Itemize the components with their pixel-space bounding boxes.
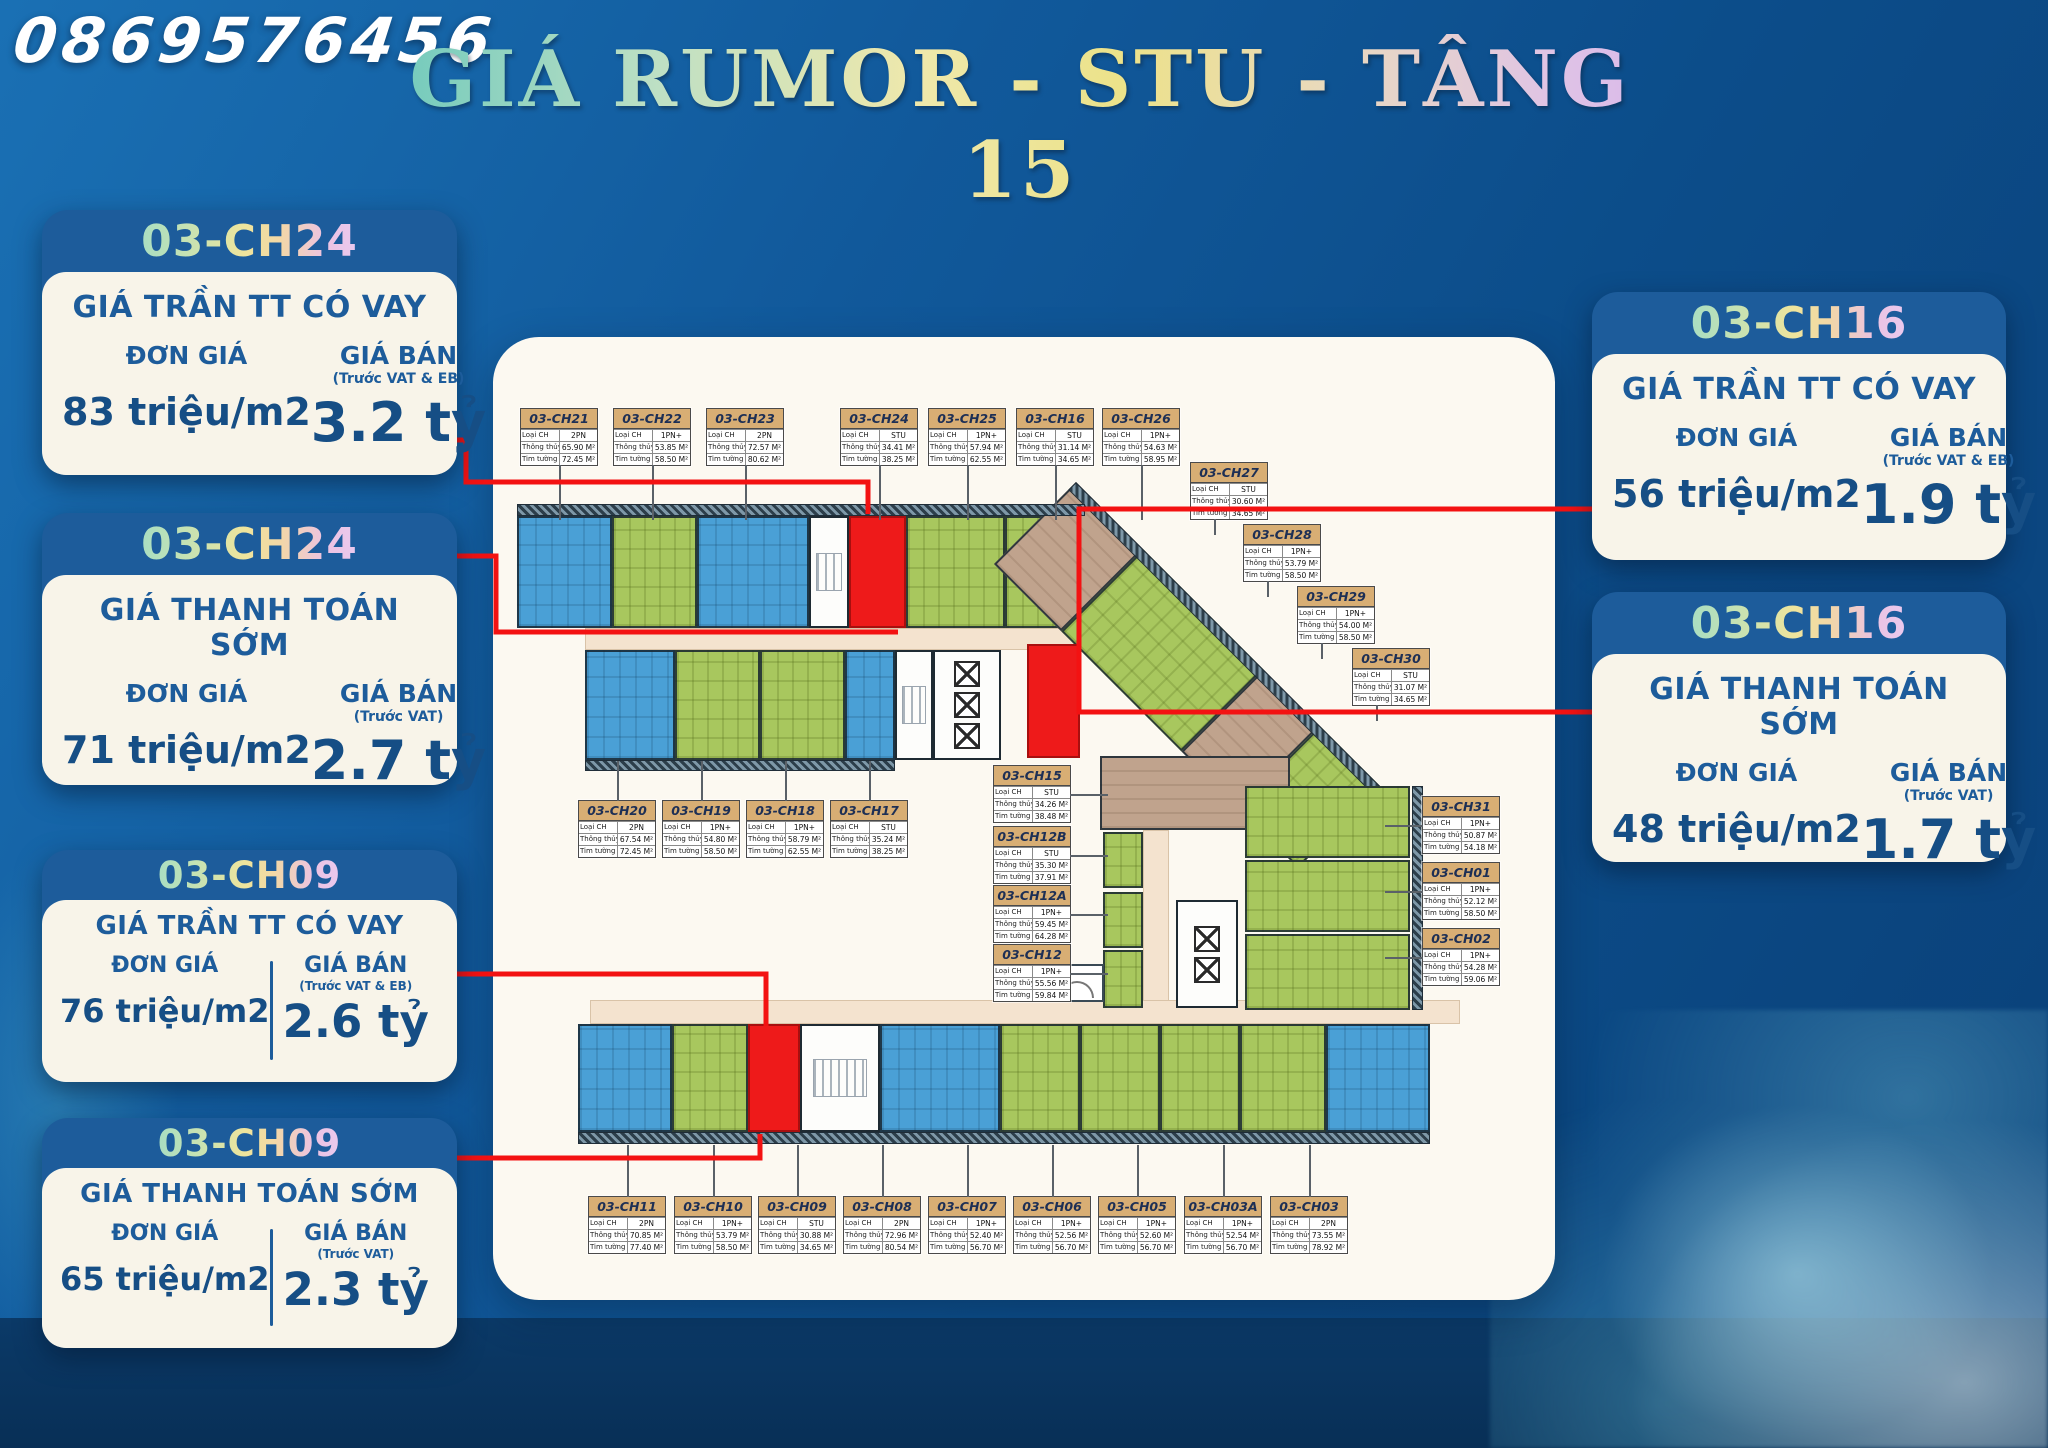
unit-net-area: 72.57 M² [746, 442, 783, 453]
unit-code: 03-CH12B [994, 827, 1070, 847]
unit-block [672, 1024, 748, 1132]
unit-type: 1PN+ [1283, 546, 1320, 557]
unit-price-label: ĐƠN GIÁ [126, 341, 248, 370]
field-label: Thông thủy [1423, 896, 1462, 907]
unit-code: 03-CH11 [589, 1197, 665, 1217]
unit-type-row: Loại CH 1PN+ [614, 429, 690, 441]
unit-gross-area-row: Tim tường 34.65 M² [1191, 507, 1267, 519]
unit-block [517, 516, 612, 628]
unit-label: 03-CH25 Loại CH 1PN+ Thông thủy 57.94 M²… [928, 408, 1006, 466]
field-label: Loại CH [1423, 884, 1462, 895]
unit-type-row: Loại CH 1PN+ [1185, 1217, 1261, 1229]
unit-block [612, 516, 697, 628]
field-label: Thông thủy [994, 919, 1033, 930]
unit-code: 03-CH29 [1298, 587, 1374, 607]
unit-price-label: ĐƠN GIÁ [1676, 758, 1798, 787]
unit-gross-area-row: Tim tường 58.95 M² [1103, 453, 1179, 465]
unit-gross-area-row: Tim tường 62.55 M² [747, 845, 823, 857]
field-label: Thông thủy [1353, 682, 1392, 693]
field-label: Tim tường [1191, 508, 1230, 519]
unit-label: 03-CH17 Loại CH STU Thông thủy 35.24 M² … [830, 800, 908, 858]
unit-type: 2PN [746, 430, 783, 441]
unit-gross-area: 56.70 M² [968, 1242, 1005, 1253]
unit-net-area-row: Thông thủy 34.41 M² [841, 441, 917, 453]
field-label: Loại CH [929, 430, 968, 441]
field-label: Thông thủy [1423, 830, 1462, 841]
unit-code: 03-CH24 [841, 409, 917, 429]
unit-gross-area-row: Tim tường 58.50 M² [663, 845, 739, 857]
unit-type-row: Loại CH 1PN+ [663, 821, 739, 833]
unit-type-row: Loại CH 1PN+ [1099, 1217, 1175, 1229]
field-label: Tim tường [747, 846, 786, 857]
field-label: Thông thủy [841, 442, 880, 453]
field-label: Tim tường [844, 1242, 883, 1253]
unit-block [880, 1024, 1000, 1132]
unit-net-area: 53.85 M² [653, 442, 690, 453]
price-card-header: 03-CH09 [42, 1118, 457, 1168]
unit-label: 03-CH08 Loại CH 2PN Thông thủy 72.96 M² … [843, 1196, 921, 1254]
price-card-header: 03-CH16 [1592, 292, 2006, 354]
unit-type-row: Loại CH STU [841, 429, 917, 441]
unit-net-area: 58.79 M² [786, 834, 823, 845]
field-label: Tim tường [841, 454, 880, 465]
unit-code: 03-CH01 [1423, 863, 1499, 883]
unit-type-row: Loại CH 1PN+ [1423, 883, 1499, 895]
unit-label: 03-CH12 Loại CH 1PN+ Thông thủy 55.56 M²… [993, 944, 1071, 1002]
unit-code: 03-CH24 [141, 519, 358, 570]
field-label: Loại CH [844, 1218, 883, 1229]
unit-type: STU [1392, 670, 1429, 681]
unit-code: 03-CH08 [844, 1197, 920, 1217]
unit-type-row: Loại CH 1PN+ [1014, 1217, 1090, 1229]
unit-code: 03-CH16 [1691, 298, 1908, 349]
elevator-core [933, 650, 1001, 760]
field-label: Loại CH [1017, 430, 1056, 441]
unit-gross-area: 77.40 M² [628, 1242, 665, 1253]
field-label: Tim tường [579, 846, 618, 857]
unit-price-value: 65 triệu/m2 [60, 1260, 270, 1298]
sale-price-label: GIÁ BÁN [304, 1221, 407, 1246]
unit-label: 03-CH11 Loại CH 2PN Thông thủy 70.85 M² … [588, 1196, 666, 1254]
field-label: Thông thủy [589, 1230, 628, 1241]
unit-type-row: Loại CH 1PN+ [1423, 949, 1499, 961]
unit-gross-area-row: Tim tường 56.70 M² [929, 1241, 1005, 1253]
unit-label: 03-CH30 Loại CH STU Thông thủy 31.07 M² … [1352, 648, 1430, 706]
unit-gross-area-row: Tim tường 59.06 M² [1423, 973, 1499, 985]
unit-price-label: ĐƠN GIÁ [1676, 423, 1798, 452]
stair-core [800, 1024, 880, 1132]
unit-code: 03-CH24 [141, 216, 358, 267]
unit-gross-area: 59.84 M² [1033, 990, 1070, 1001]
sale-price-value: 2.3 tỷ [283, 1263, 429, 1316]
unit-price-value: 48 triệu/m2 [1612, 807, 1861, 851]
unit-code: 03-CH10 [675, 1197, 751, 1217]
unit-net-area: 54.28 M² [1462, 962, 1499, 973]
sale-price-value: 1.7 tỷ [1861, 808, 2036, 871]
unit-gross-area-row: Tim tường 80.62 M² [707, 453, 783, 465]
unit-gross-area-row: Tim tường 62.55 M² [929, 453, 1005, 465]
unit-type-row: Loại CH 2PN [844, 1217, 920, 1229]
field-label: Loại CH [994, 966, 1033, 977]
unit-gross-area: 64.28 M² [1033, 931, 1070, 942]
unit-label: 03-CH23 Loại CH 2PN Thông thủy 72.57 M² … [706, 408, 784, 466]
unit-gross-area-row: Tim tường 37.91 M² [994, 871, 1070, 883]
sale-price-note: (Trước VAT) [317, 1247, 394, 1261]
unit-price-value: 56 triệu/m2 [1612, 472, 1861, 516]
unit-net-area-row: Thông thủy 53.79 M² [1244, 557, 1320, 569]
unit-label: 03-CH27 Loại CH STU Thông thủy 30.60 M² … [1190, 462, 1268, 520]
field-label: Thông thủy [844, 1230, 883, 1241]
unit-net-area-row: Thông thủy 35.30 M² [994, 859, 1070, 871]
field-label: Loại CH [1103, 430, 1142, 441]
unit-type-row: Loại CH 1PN+ [1103, 429, 1179, 441]
unit-net-area-row: Thông thủy 57.94 M² [929, 441, 1005, 453]
field-label: Loại CH [707, 430, 746, 441]
unit-gross-area: 58.50 M² [653, 454, 690, 465]
price-card-header: 03-CH24 [42, 210, 457, 272]
sale-price-note: (Trước VAT & EB) [333, 371, 465, 387]
unit-net-area-row: Thông thủy 30.60 M² [1191, 495, 1267, 507]
unit-gross-area: 56.70 M² [1224, 1242, 1261, 1253]
unit-label: 03-CH29 Loại CH 1PN+ Thông thủy 54.00 M²… [1297, 586, 1375, 644]
stair-core [809, 516, 849, 628]
unit-type: STU [1230, 484, 1267, 495]
unit-block [1103, 950, 1143, 1008]
sale-price-label: GIÁ BÁN [340, 679, 457, 708]
field-label: Thông thủy [994, 978, 1033, 989]
unit-type: 2PN [560, 430, 597, 441]
unit-type-row: Loại CH 2PN [521, 429, 597, 441]
unit-type: 2PN [628, 1218, 665, 1229]
unit-net-area-row: Thông thủy 70.85 M² [589, 1229, 665, 1241]
field-label: Thông thủy [1298, 620, 1337, 631]
field-label: Tim tường [929, 454, 968, 465]
unit-code: 03-CH03A [1185, 1197, 1261, 1217]
unit-block [1080, 1024, 1160, 1132]
unit-type: 1PN+ [1053, 1218, 1090, 1229]
unit-gross-area: 34.65 M² [798, 1242, 835, 1253]
stair-core [895, 650, 933, 760]
price-card-body: GIÁ TRẦN TT CÓ VAY ĐƠN GIÁ 56 triệu/m2 G… [1592, 354, 2006, 560]
field-label: Thông thủy [1017, 442, 1056, 453]
unit-code: 03-CH12A [994, 886, 1070, 906]
unit-code: 03-CH22 [614, 409, 690, 429]
unit-gross-area: 38.25 M² [880, 454, 917, 465]
unit-block [697, 516, 809, 628]
field-label: Loại CH [521, 430, 560, 441]
unit-code: 03-CH28 [1244, 525, 1320, 545]
unit-label: 03-CH07 Loại CH 1PN+ Thông thủy 52.40 M²… [928, 1196, 1006, 1254]
unit-type-row: Loại CH 1PN+ [1423, 817, 1499, 829]
field-label: Loại CH [1423, 950, 1462, 961]
field-label: Tim tường [831, 846, 870, 857]
unit-price-value: 76 triệu/m2 [60, 992, 270, 1030]
unit-gross-area: 58.50 M² [1462, 908, 1499, 919]
unit-net-area-row: Thông thủy 72.57 M² [707, 441, 783, 453]
price-card-body: GIÁ TRẦN TT CÓ VAY ĐƠN GIÁ 76 triệu/m2 G… [42, 900, 457, 1082]
unit-gross-area: 80.62 M² [746, 454, 783, 465]
unit-gross-area: 58.50 M² [1283, 570, 1320, 581]
unit-net-area: 57.94 M² [968, 442, 1005, 453]
unit-label: 03-CH06 Loại CH 1PN+ Thông thủy 52.56 M²… [1013, 1196, 1091, 1254]
unit-gross-area: 80.54 M² [883, 1242, 920, 1253]
sale-price-value: 2.6 tỷ [283, 995, 429, 1048]
field-label: Tim tường [614, 454, 653, 465]
unit-gross-area: 58.50 M² [714, 1242, 751, 1253]
field-label: Thông thủy [675, 1230, 714, 1241]
sale-price-value: 2.7 tỷ [311, 729, 486, 792]
unit-code: 03-CH09 [759, 1197, 835, 1217]
unit-price-value: 71 triệu/m2 [62, 728, 311, 772]
price-type-title: GIÁ THANH TOÁN SỚM [58, 593, 441, 663]
unit-block [675, 650, 760, 760]
unit-gross-area-row: Tim tường 34.65 M² [1353, 693, 1429, 705]
unit-gross-area: 78.92 M² [1310, 1242, 1347, 1253]
unit-gross-area-row: Tim tường 56.70 M² [1185, 1241, 1261, 1253]
unit-type: 1PN+ [714, 1218, 751, 1229]
price-type-title: GIÁ TRẦN TT CÓ VAY [56, 911, 443, 941]
unit-code: 03-CH05 [1099, 1197, 1175, 1217]
unit-block [1245, 934, 1410, 1010]
field-label: Tim tường [1099, 1242, 1138, 1253]
unit-code: 03-CH21 [521, 409, 597, 429]
unit-net-area-row: Thông thủy 65.90 M² [521, 441, 597, 453]
unit-code: 03-CH25 [929, 409, 1005, 429]
field-label: Tim tường [1271, 1242, 1310, 1253]
unit-net-area: 31.14 M² [1056, 442, 1093, 453]
field-label: Thông thủy [1244, 558, 1283, 569]
price-card-ch16-som: 03-CH16 GIÁ THANH TOÁN SỚM ĐƠN GIÁ 48 tr… [1592, 592, 2006, 862]
unit-block [585, 650, 675, 760]
unit-block [1240, 1024, 1326, 1132]
unit-net-area-row: Thông thủy 31.14 M² [1017, 441, 1093, 453]
elevator-core [1176, 900, 1238, 1008]
unit-type-row: Loại CH 2PN [579, 821, 655, 833]
field-label: Loại CH [675, 1218, 714, 1229]
unit-net-area-row: Thông thủy 53.85 M² [614, 441, 690, 453]
unit-type-row: Loại CH STU [994, 847, 1070, 859]
unit-code: 03-CH15 [994, 766, 1070, 786]
unit-price-label: ĐƠN GIÁ [111, 1221, 218, 1246]
field-label: Tim tường [1423, 842, 1462, 853]
unit-type: 1PN+ [968, 430, 1005, 441]
unit-gross-area-row: Tim tường 34.65 M² [1017, 453, 1093, 465]
sale-price-label: GIÁ BÁN [1890, 423, 2007, 452]
price-card-ch16-tran: 03-CH16 GIÁ TRẦN TT CÓ VAY ĐƠN GIÁ 56 tr… [1592, 292, 2006, 560]
unit-type: STU [870, 822, 907, 833]
field-label: Tim tường [1244, 570, 1283, 581]
unit-type: STU [1056, 430, 1093, 441]
unit-net-area-row: Thông thủy 52.12 M² [1423, 895, 1499, 907]
unit-net-area: 67.54 M² [618, 834, 655, 845]
unit-net-area-row: Thông thủy 52.54 M² [1185, 1229, 1261, 1241]
unit-type: 1PN+ [1142, 430, 1179, 441]
unit-gross-area: 37.91 M² [1033, 872, 1070, 883]
unit-label: 03-CH10 Loại CH 1PN+ Thông thủy 53.79 M²… [674, 1196, 752, 1254]
unit-type-row: Loại CH STU [1191, 483, 1267, 495]
unit-code: 03-CH26 [1103, 409, 1179, 429]
unit-gross-area-row: Tim tường 77.40 M² [589, 1241, 665, 1253]
unit-gross-area-row: Tim tường 38.25 M² [831, 845, 907, 857]
field-label: Thông thủy [663, 834, 702, 845]
field-label: Tim tường [1423, 974, 1462, 985]
price-card-ch09-tran: 03-CH09 GIÁ TRẦN TT CÓ VAY ĐƠN GIÁ 76 tr… [42, 850, 457, 1082]
unit-net-area: 34.26 M² [1033, 799, 1070, 810]
unit-label: 03-CH12A Loại CH 1PN+ Thông thủy 59.45 M… [993, 885, 1071, 943]
unit-gross-area-row: Tim tường 38.25 M² [841, 453, 917, 465]
unit-type: 2PN [883, 1218, 920, 1229]
unit-gross-area: 56.70 M² [1053, 1242, 1090, 1253]
unit-gross-area: 62.55 M² [968, 454, 1005, 465]
field-label: Tim tường [994, 872, 1033, 883]
field-label: Loại CH [1423, 818, 1462, 829]
field-label: Tim tường [1103, 454, 1142, 465]
unit-code: 03-CH27 [1191, 463, 1267, 483]
field-label: Tim tường [994, 931, 1033, 942]
highlighted-unit-ch09 [748, 1024, 800, 1132]
unit-net-area-row: Thông thủy 73.55 M² [1271, 1229, 1347, 1241]
unit-gross-area: 56.70 M² [1138, 1242, 1175, 1253]
unit-code: 03-CH20 [579, 801, 655, 821]
field-label: Loại CH [1185, 1218, 1224, 1229]
field-label: Thông thủy [579, 834, 618, 845]
unit-net-area-row: Thông thủy 30.88 M² [759, 1229, 835, 1241]
unit-net-area: 50.87 M² [1462, 830, 1499, 841]
field-label: Tim tường [994, 811, 1033, 822]
field-label: Thông thủy [994, 799, 1033, 810]
elevator-icon [1194, 926, 1220, 952]
unit-net-area-row: Thông thủy 50.87 M² [1423, 829, 1499, 841]
unit-gross-area-row: Tim tường 58.50 M² [1244, 569, 1320, 581]
price-card-body: GIÁ TRẦN TT CÓ VAY ĐƠN GIÁ 83 triệu/m2 G… [42, 272, 457, 475]
field-label: Tim tường [1423, 908, 1462, 919]
unit-type: 1PN+ [968, 1218, 1005, 1229]
unit-label: 03-CH02 Loại CH 1PN+ Thông thủy 54.28 M²… [1422, 928, 1500, 986]
unit-block [1245, 786, 1410, 858]
unit-block [1103, 832, 1143, 888]
unit-code: 03-CH06 [1014, 1197, 1090, 1217]
sale-price-value: 1.9 tỷ [1861, 473, 2036, 536]
unit-type-row: Loại CH 1PN+ [929, 1217, 1005, 1229]
field-label: Tim tường [1298, 632, 1337, 643]
unit-net-area-row: Thông thủy 34.26 M² [994, 798, 1070, 810]
unit-block [578, 1024, 672, 1132]
unit-net-area-row: Thông thủy 59.45 M² [994, 918, 1070, 930]
unit-net-area: 35.24 M² [870, 834, 907, 845]
corridor [1143, 830, 1169, 1010]
unit-net-area: 52.54 M² [1224, 1230, 1261, 1241]
unit-gross-area-row: Tim tường 58.50 M² [1423, 907, 1499, 919]
unit-type-row: Loại CH STU [1017, 429, 1093, 441]
unit-label: 03-CH31 Loại CH 1PN+ Thông thủy 50.87 M²… [1422, 796, 1500, 854]
unit-net-area: 54.80 M² [702, 834, 739, 845]
unit-block [1160, 1024, 1240, 1132]
unit-gross-area-row: Tim tường 38.48 M² [994, 810, 1070, 822]
unit-gross-area-row: Tim tường 58.50 M² [1298, 631, 1374, 643]
unit-net-area-row: Thông thủy 67.54 M² [579, 833, 655, 845]
unit-gross-area: 72.45 M² [560, 454, 597, 465]
field-label: Thông thủy [929, 1230, 968, 1241]
unit-gross-area: 58.50 M² [1337, 632, 1374, 643]
unit-label: 03-CH24 Loại CH STU Thông thủy 34.41 M² … [840, 408, 918, 466]
field-label: Thông thủy [759, 1230, 798, 1241]
unit-label: 03-CH22 Loại CH 1PN+ Thông thủy 53.85 M²… [613, 408, 691, 466]
field-label: Loại CH [1191, 484, 1230, 495]
sale-price-label: GIÁ BÁN [340, 341, 457, 370]
unit-label: 03-CH26 Loại CH 1PN+ Thông thủy 54.63 M²… [1102, 408, 1180, 466]
elevator-icon [1194, 957, 1220, 983]
unit-block [1245, 860, 1410, 932]
unit-net-area: 59.45 M² [1033, 919, 1070, 930]
unit-gross-area: 72.45 M² [618, 846, 655, 857]
elevator-icon [954, 723, 980, 749]
unit-code: 03-CH09 [158, 1122, 341, 1165]
unit-type: STU [880, 430, 917, 441]
unit-label: 03-CH12B Loại CH STU Thông thủy 35.30 M²… [993, 826, 1071, 884]
field-label: Tim tường [589, 1242, 628, 1253]
field-label: Loại CH [1271, 1218, 1310, 1229]
unit-type: STU [1033, 848, 1070, 859]
unit-gross-area: 58.95 M² [1142, 454, 1179, 465]
field-label: Loại CH [1298, 608, 1337, 619]
unit-label: 03-CH09 Loại CH STU Thông thủy 30.88 M² … [758, 1196, 836, 1254]
price-type-title: GIÁ TRẦN TT CÓ VAY [58, 290, 441, 325]
unit-net-area-row: Thông thủy 52.40 M² [929, 1229, 1005, 1241]
field-label: Thông thủy [1191, 496, 1230, 507]
field-label: Thông thủy [994, 860, 1033, 871]
field-label: Thông thủy [1103, 442, 1142, 453]
field-label: Loại CH [994, 907, 1033, 918]
field-label: Loại CH [994, 848, 1033, 859]
unit-type-row: Loại CH STU [831, 821, 907, 833]
unit-net-area-row: Thông thủy 31.07 M² [1353, 681, 1429, 693]
corridor [585, 628, 1090, 650]
unit-gross-area-row: Tim tường 34.65 M² [759, 1241, 835, 1253]
elevator-icon [954, 692, 980, 718]
field-label: Loại CH [589, 1218, 628, 1229]
unit-price-label: ĐƠN GIÁ [111, 953, 218, 978]
unit-label: 03-CH05 Loại CH 1PN+ Thông thủy 52.60 M²… [1098, 1196, 1176, 1254]
unit-type: 2PN [1310, 1218, 1347, 1229]
unit-type: 1PN+ [1462, 950, 1499, 961]
unit-net-area: 35.30 M² [1033, 860, 1070, 871]
unit-gross-area-row: Tim tường 72.45 M² [579, 845, 655, 857]
unit-type-row: Loại CH 1PN+ [675, 1217, 751, 1229]
unit-label: 03-CH15 Loại CH STU Thông thủy 34.26 M² … [993, 765, 1071, 823]
unit-gross-area-row: Tim tường 59.84 M² [994, 989, 1070, 1001]
unit-type: 1PN+ [653, 430, 690, 441]
unit-gross-area: 54.18 M² [1462, 842, 1499, 853]
unit-code: 03-CH02 [1423, 929, 1499, 949]
price-card-header: 03-CH09 [42, 850, 457, 900]
balcony-hatch [517, 504, 1085, 516]
price-card-body: GIÁ THANH TOÁN SỚM ĐƠN GIÁ 71 triệu/m2 G… [42, 575, 457, 785]
field-label: Tim tường [1185, 1242, 1224, 1253]
field-label: Loại CH [841, 430, 880, 441]
unit-label: 03-CH03 Loại CH 2PN Thông thủy 73.55 M² … [1270, 1196, 1348, 1254]
unit-gross-area-row: Tim tường 54.18 M² [1423, 841, 1499, 853]
field-label: Thông thủy [614, 442, 653, 453]
field-label: Tim tường [675, 1242, 714, 1253]
unit-type-row: Loại CH 1PN+ [929, 429, 1005, 441]
sale-price-note: (Trước VAT & EB) [1883, 453, 2015, 469]
sale-price-label: GIÁ BÁN [1890, 758, 2007, 787]
unit-type: 1PN+ [1033, 907, 1070, 918]
sale-price-note: (Trước VAT) [354, 709, 444, 725]
unit-net-area: 54.00 M² [1337, 620, 1374, 631]
unit-type: 1PN+ [1033, 966, 1070, 977]
unit-gross-area-row: Tim tường 64.28 M² [994, 930, 1070, 942]
